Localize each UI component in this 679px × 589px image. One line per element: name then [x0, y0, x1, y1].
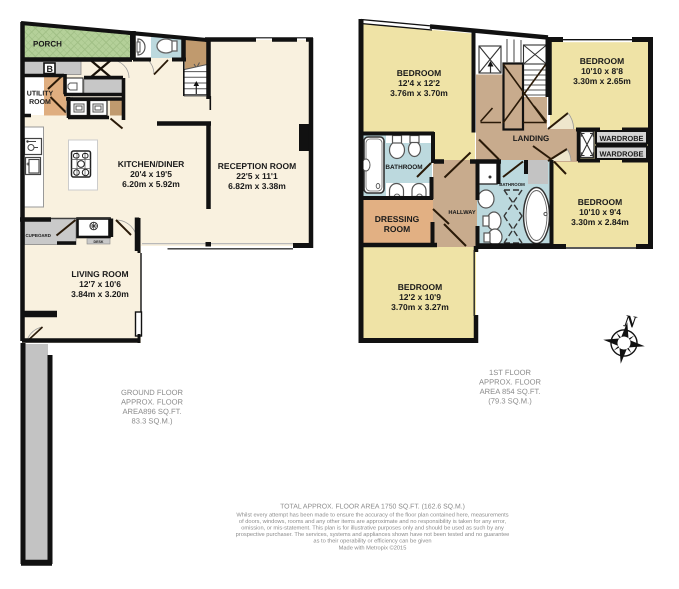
svg-text:3.30m x 2.84m: 3.30m x 2.84m: [571, 217, 629, 227]
svg-text:DESK: DESK: [94, 240, 104, 244]
svg-text:APPROX. FLOOR: APPROX. FLOOR: [479, 378, 542, 387]
svg-text:of doors, windows, rooms and a: of doors, windows, rooms and any other i…: [239, 518, 507, 525]
svg-text:(79.3 SQ.M.): (79.3 SQ.M.): [488, 397, 532, 406]
svg-text:AREA 854 SQ.FT.: AREA 854 SQ.FT.: [480, 387, 541, 396]
svg-text:BEDROOM: BEDROOM: [397, 68, 441, 78]
svg-text:BEDROOM: BEDROOM: [578, 197, 622, 207]
svg-text:BEDROOM: BEDROOM: [398, 282, 442, 292]
svg-text:UTILITY: UTILITY: [27, 91, 54, 98]
svg-text:BEDROOM: BEDROOM: [580, 56, 624, 66]
svg-text:Made with Metropix ©2015: Made with Metropix ©2015: [339, 545, 407, 552]
svg-text:B: B: [47, 64, 54, 74]
svg-text:3.76m x 3.70m: 3.76m x 3.70m: [390, 88, 448, 98]
svg-text:12'4 x 12'2: 12'4 x 12'2: [398, 78, 440, 88]
svg-text:BATHROOM: BATHROOM: [499, 182, 525, 187]
svg-text:HALLWAY: HALLWAY: [448, 210, 475, 216]
svg-text:LIVING ROOM: LIVING ROOM: [71, 269, 128, 279]
svg-text:3.30m x 2.65m: 3.30m x 2.65m: [573, 76, 631, 86]
svg-text:10'10 x 9'4: 10'10 x 9'4: [579, 207, 621, 217]
svg-text:N: N: [622, 311, 639, 332]
svg-text:WARDROBE: WARDROBE: [600, 150, 644, 159]
svg-text:AREA896 SQ.FT.: AREA896 SQ.FT.: [122, 407, 181, 416]
svg-text:3.84m x 3.20m: 3.84m x 3.20m: [71, 289, 129, 299]
svg-text:prospective purchaser. The ser: prospective purchaser. The services, sys…: [236, 531, 510, 538]
svg-text:Whilst every attempt has been: Whilst every attempt has been made to en…: [236, 512, 508, 519]
svg-text:WARDROBE: WARDROBE: [600, 134, 644, 143]
svg-text:6.20m x 5.92m: 6.20m x 5.92m: [122, 179, 180, 189]
svg-text:PORCH: PORCH: [33, 40, 62, 49]
svg-text:20'4 x 19'5: 20'4 x 19'5: [130, 169, 172, 179]
svg-text:22'5 x 11'1: 22'5 x 11'1: [236, 171, 278, 181]
svg-text:as to their operability or eff: as to their operability or efficiency ca…: [313, 538, 431, 545]
svg-text:1ST FLOOR: 1ST FLOOR: [489, 368, 532, 377]
svg-text:LANDING: LANDING: [513, 134, 549, 143]
svg-text:TOTAL APPROX. FLOOR AREA 1750: TOTAL APPROX. FLOOR AREA 1750 SQ.FT. (16…: [280, 504, 465, 511]
svg-text:ROOM: ROOM: [29, 99, 51, 106]
svg-text:ROOM: ROOM: [384, 224, 410, 234]
svg-text:3.70m x 3.27m: 3.70m x 3.27m: [391, 302, 449, 312]
svg-text:BATHROOM: BATHROOM: [385, 164, 422, 171]
svg-text:10'10 x 8'8: 10'10 x 8'8: [581, 66, 623, 76]
svg-text:DRESSING: DRESSING: [375, 214, 420, 224]
svg-text:KITCHEN/DINER: KITCHEN/DINER: [118, 159, 185, 169]
svg-text:RECEPTION ROOM: RECEPTION ROOM: [218, 161, 296, 171]
svg-text:omission, or mis-statement. Th: omission, or mis-statement. This plan is…: [241, 525, 504, 532]
svg-text:83.3 SQ.M.): 83.3 SQ.M.): [132, 417, 173, 426]
svg-text:12'2 x 10'9: 12'2 x 10'9: [399, 292, 441, 302]
svg-text:12'7 x 10'6: 12'7 x 10'6: [79, 279, 121, 289]
svg-text:GROUND FLOOR: GROUND FLOOR: [121, 388, 184, 397]
svg-text:APPROX. FLOOR: APPROX. FLOOR: [121, 398, 184, 407]
svg-text:6.82m x 3.38m: 6.82m x 3.38m: [228, 181, 286, 191]
svg-text:CUPBOARD: CUPBOARD: [26, 233, 51, 238]
